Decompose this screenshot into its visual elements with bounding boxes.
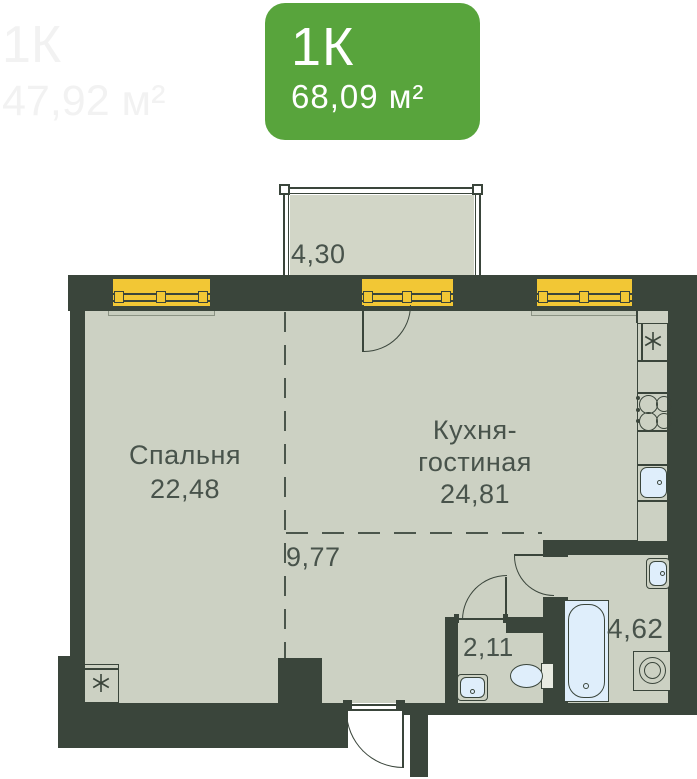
window-bedroom xyxy=(113,277,210,308)
kitchen-name-line1: Кухня- xyxy=(375,414,575,446)
window-kitchen xyxy=(537,277,632,308)
vent-box-inner-line xyxy=(84,668,119,670)
entrance-threshold xyxy=(347,704,403,706)
hallway-area-label: 9,77 xyxy=(286,540,341,574)
wc-area-label: 2,11 xyxy=(463,630,514,664)
balcony-door-window xyxy=(362,277,453,308)
watermark-area-label: 47,92 м² xyxy=(2,78,165,124)
counter-line xyxy=(637,500,668,502)
basin-drain xyxy=(470,689,475,694)
counter-line xyxy=(637,392,668,394)
bedroom-area: 22,48 xyxy=(95,472,275,506)
entrance-jamb xyxy=(343,700,352,711)
entrance-jamb xyxy=(396,700,405,711)
badge-area-label: 68,09 м² xyxy=(291,79,480,115)
wc-door-jamb xyxy=(454,614,459,623)
sink-drain xyxy=(657,480,662,485)
basin-drain xyxy=(660,571,665,576)
kitchen-living-label: Кухня- гостиная 24,81 xyxy=(375,414,575,510)
bedroom-zone-divider xyxy=(284,312,286,658)
wall-bottom-left xyxy=(58,703,348,748)
apartment-type-badge: 1К 68,09 м² xyxy=(265,3,480,140)
wc-washbasin-bowl xyxy=(460,677,485,698)
wc-door-threshold xyxy=(458,618,506,620)
kitchen-sink xyxy=(640,467,667,498)
counter-line xyxy=(637,430,668,432)
balcony-area-label: 4,30 xyxy=(291,237,346,271)
bedroom-name: Спальня xyxy=(95,438,275,472)
balcony-corner-post xyxy=(472,184,483,195)
kitchen-area: 24,81 xyxy=(375,478,575,510)
counter-connector xyxy=(636,311,638,323)
vent-icon xyxy=(91,673,111,693)
bedroom-label: Спальня 22,48 xyxy=(95,438,275,506)
entry-pier xyxy=(410,703,428,777)
bath-wall-top xyxy=(543,540,668,555)
bathroom-area-label: 4,62 xyxy=(607,612,664,646)
bathtub-drain xyxy=(583,683,589,689)
washing-machine-drum-inner xyxy=(644,662,661,679)
watermark: 1К 47,92 м² xyxy=(2,18,165,124)
entrance-door-swing xyxy=(346,711,403,768)
floorplan-canvas: 1К 47,92 м² 1К 68,09 м² 4,30 xyxy=(0,0,697,779)
balcony-corner-post xyxy=(279,184,290,195)
wc-door-jamb xyxy=(503,614,508,623)
wall-left xyxy=(70,311,85,660)
toilet-bowl xyxy=(510,664,543,688)
hall-pier xyxy=(278,658,322,705)
counter-line xyxy=(637,464,668,466)
vent-icon xyxy=(643,331,663,351)
badge-type-label: 1К xyxy=(291,19,480,75)
wall-right xyxy=(668,275,697,715)
hallway-zone-divider xyxy=(286,532,542,534)
entrance-threshold xyxy=(347,709,403,711)
counter-line xyxy=(637,360,668,362)
kitchen-name-line2: гостиная xyxy=(375,446,575,478)
watermark-type-label: 1К xyxy=(2,18,165,72)
wall-left-lower xyxy=(58,656,85,705)
